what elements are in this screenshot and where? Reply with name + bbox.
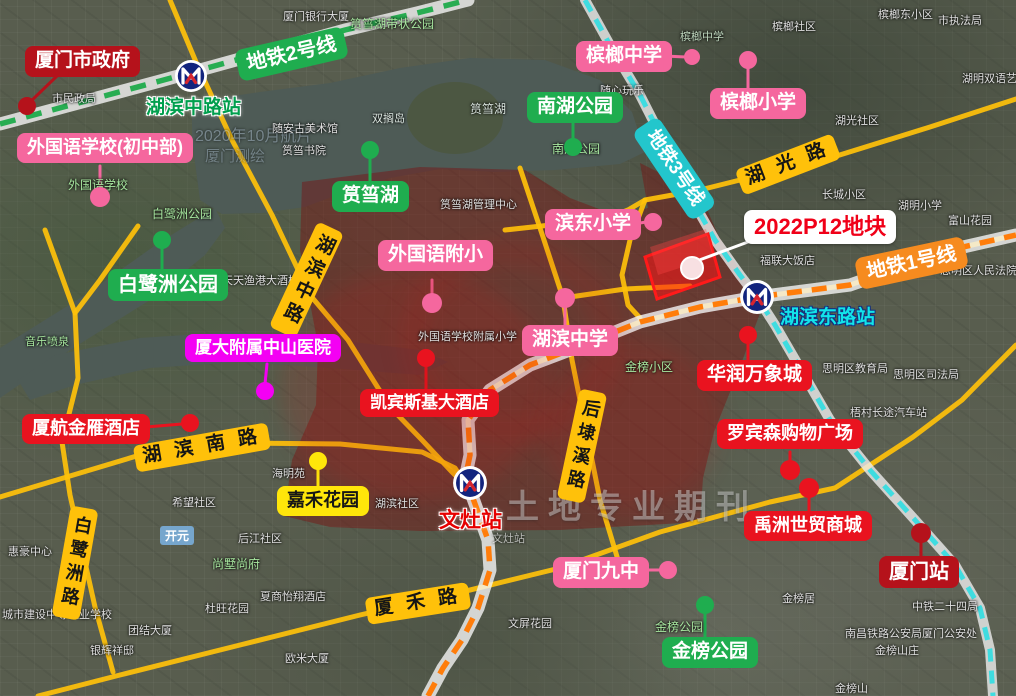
hubin-middle-school-dot bbox=[555, 288, 575, 308]
jinyan-hotel-label: 厦航金雁酒店 bbox=[22, 414, 150, 444]
kempinski-hotel-label: 凯宾斯基大酒店 bbox=[360, 389, 499, 417]
yundang-lake-dot bbox=[361, 141, 379, 159]
binlang-primary-school-dot bbox=[739, 51, 757, 69]
mixc-mall-label: 华润万象城 bbox=[697, 360, 812, 391]
zhongshan-hospital-leader-line bbox=[265, 364, 267, 384]
satellite-map[interactable]: 土地专业期刊 厦门银行大厦筼筜湖带状公园槟榔东小区市执法局槟榔社区槟榔中学湖明双… bbox=[0, 0, 1016, 696]
robinson-plaza-label: 罗宾森购物广场 bbox=[717, 419, 863, 449]
yundang-lake-label: 筼筜湖 bbox=[332, 181, 409, 212]
hubin-middle-road-station-name: 湖滨中路站 bbox=[146, 92, 241, 119]
xiamen-no9-middle-school-label: 厦门九中 bbox=[553, 557, 649, 588]
bailuzhou-park-dot bbox=[153, 231, 171, 249]
nanhu-park-label: 南湖公园 bbox=[527, 92, 623, 123]
zhongshan-hospital-dot bbox=[256, 382, 274, 400]
hubin-east-road-station-metro-icon bbox=[739, 279, 775, 320]
bindong-primary-school-label: 滨东小学 bbox=[545, 209, 641, 240]
robinson-plaza-dot bbox=[780, 460, 800, 480]
bindong-primary-school-dot bbox=[644, 213, 662, 231]
yuzhou-mall-label: 禹洲世贸商城 bbox=[744, 511, 872, 541]
jiahe-garden-dot bbox=[309, 452, 327, 470]
foreign-language-primary-label: 外国语附小 bbox=[378, 240, 493, 271]
binlang-middle-school-dot bbox=[684, 49, 700, 65]
road-bailuzhou-road-branch bbox=[45, 230, 75, 313]
foreign-language-school-junior-dot bbox=[90, 187, 110, 207]
foreign-language-school-junior-label: 外国语学校(初中部) bbox=[17, 133, 193, 163]
island bbox=[407, 82, 503, 154]
jinbang-park-dot bbox=[696, 596, 714, 614]
wenzao-station-metro-icon bbox=[452, 465, 488, 506]
mixc-mall-dot bbox=[739, 326, 757, 344]
xiamen-no9-middle-school-dot bbox=[659, 561, 677, 579]
bailuzhou-park-label: 白鹭洲公园 bbox=[108, 269, 228, 301]
binlang-primary-school-label: 槟榔小学 bbox=[710, 88, 806, 119]
wenzao-station-name: 文灶站 bbox=[439, 504, 502, 534]
hubin-middle-school-label: 湖滨中学 bbox=[522, 325, 618, 356]
jinyan-hotel-leader-line bbox=[146, 424, 182, 427]
xiamen-government-label: 厦门市政府 bbox=[25, 46, 140, 77]
jinyan-hotel-dot bbox=[181, 414, 199, 432]
xiamen-railway-station-dot bbox=[911, 523, 931, 543]
foreign-language-primary-dot bbox=[422, 293, 442, 313]
hubin-east-road-station-name: 湖滨东路站 bbox=[780, 302, 875, 329]
zhongshan-hospital-label: 厦大附属中山医院 bbox=[185, 334, 341, 362]
binlang-middle-school-label: 槟榔中学 bbox=[576, 41, 672, 72]
xiamen-railway-station-label: 厦门站 bbox=[879, 556, 959, 588]
xiamen-government-dot bbox=[18, 97, 36, 115]
parcel-marker-dot bbox=[680, 256, 704, 280]
kempinski-hotel-dot bbox=[417, 349, 435, 367]
parcel-2022P12-label: 2022P12地块 bbox=[744, 210, 896, 244]
jinbang-park-label: 金榜公园 bbox=[662, 637, 758, 668]
yuzhou-mall-dot bbox=[799, 478, 819, 498]
nanhu-park-dot bbox=[564, 138, 582, 156]
jiahe-garden-label: 嘉禾花园 bbox=[277, 486, 369, 516]
